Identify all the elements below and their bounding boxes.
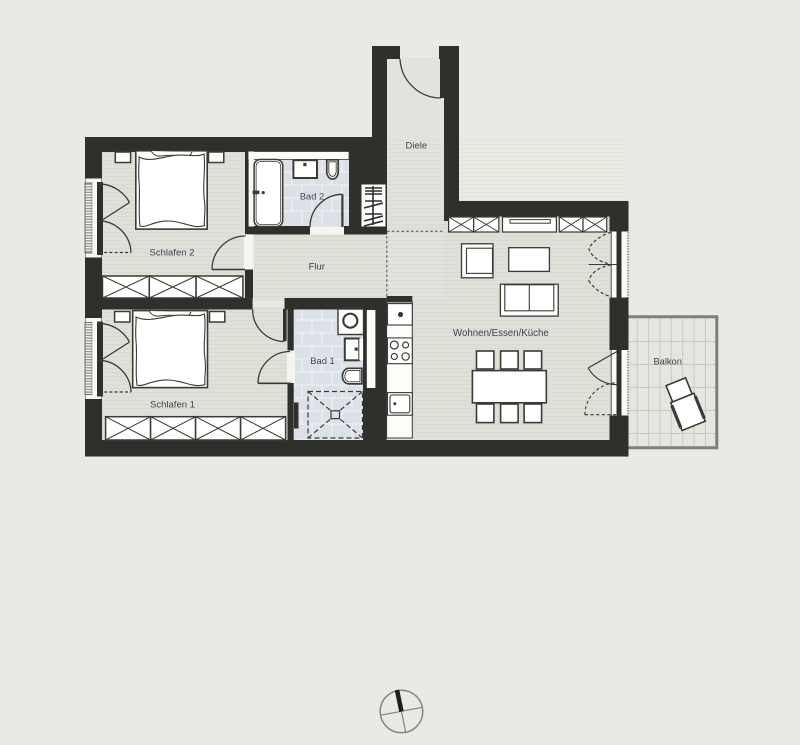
svg-text:Wohnen/Essen/Küche: Wohnen/Essen/Küche [453, 328, 549, 339]
svg-text:Flur: Flur [309, 261, 325, 272]
svg-text:Bad 1: Bad 1 [310, 356, 334, 366]
svg-text:Schlafen 1: Schlafen 1 [150, 400, 195, 411]
svg-text:Bad 2: Bad 2 [300, 191, 324, 201]
svg-text:Diele: Diele [405, 141, 427, 152]
svg-text:Schlafen 2: Schlafen 2 [150, 248, 195, 259]
svg-text:Balkon: Balkon [653, 357, 681, 367]
